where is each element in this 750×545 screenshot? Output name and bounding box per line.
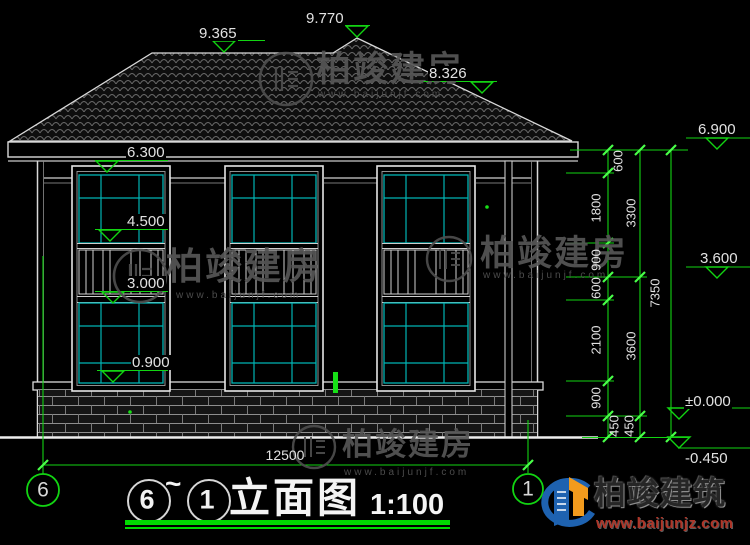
dim-900-upper: 900 <box>590 249 603 271</box>
title-axis-from: 6 <box>139 487 154 514</box>
level-roof-hip: 9.365 <box>198 26 238 41</box>
dim-450-outer: 450 <box>623 415 636 437</box>
downspout <box>505 161 512 437</box>
eave-fascia <box>8 142 578 161</box>
watermark-brand: 柏竣建房 <box>166 248 322 285</box>
cad-elevation-canvas: 柏竣建房 www.baijunjf.com 柏竣建房 www.baijunjf.… <box>0 0 750 545</box>
axis-bubble-6: 6 <box>37 480 49 501</box>
level-roof-slope: 8.326 <box>428 66 468 81</box>
level-upper-window-head: 6.300 <box>126 145 166 160</box>
dim-600-top: 600 <box>612 150 625 172</box>
watermark-url: www.baijunjf.com <box>344 468 469 478</box>
dim-3600: 3600 <box>625 332 638 361</box>
dim-900-lower: 900 <box>590 387 603 409</box>
level-eave: 6.900 <box>697 122 737 137</box>
drawing-title: 立面图 <box>229 478 361 519</box>
logo-url: www.baijunjz.com <box>596 516 733 531</box>
level-upper-window-sill: 4.500 <box>126 214 166 229</box>
logo-icon <box>536 472 596 538</box>
title-underline-thick <box>125 520 450 525</box>
title-tilde: ~ <box>165 470 181 498</box>
watermark-url: www.baijunjf.com <box>318 90 443 100</box>
title-axis-to: 1 <box>199 487 214 514</box>
level-roof-peak: 9.770 <box>305 11 345 26</box>
watermark-brand: 柏竣建房 <box>480 236 628 271</box>
level-lower-window-sill: 0.900 <box>131 355 171 370</box>
level-grade: -0.450 <box>684 451 729 466</box>
dim-600-mid: 600 <box>590 277 603 299</box>
level-mid: 3.600 <box>699 251 739 266</box>
dim-12500-total: 12500 <box>266 448 305 462</box>
dim-2100: 2100 <box>590 326 603 355</box>
title-underline-thin <box>125 527 450 529</box>
logo-brand: 柏竣建筑 <box>594 477 726 509</box>
level-zero: ±0.000 <box>684 394 732 409</box>
axis-bubble-1: 1 <box>522 479 534 500</box>
watermark-brand: 柏竣建房 <box>342 429 474 460</box>
level-lower-window-head: 3.000 <box>126 276 166 291</box>
drawing-scale: 1:100 <box>370 491 444 520</box>
watermark-url: www.baijunjf.com <box>176 291 301 301</box>
dim-3300: 3300 <box>625 199 638 228</box>
dim-7350-total: 7350 <box>649 279 662 308</box>
dim-1800: 1800 <box>590 194 603 223</box>
dim-450-inner: 450 <box>608 415 621 437</box>
